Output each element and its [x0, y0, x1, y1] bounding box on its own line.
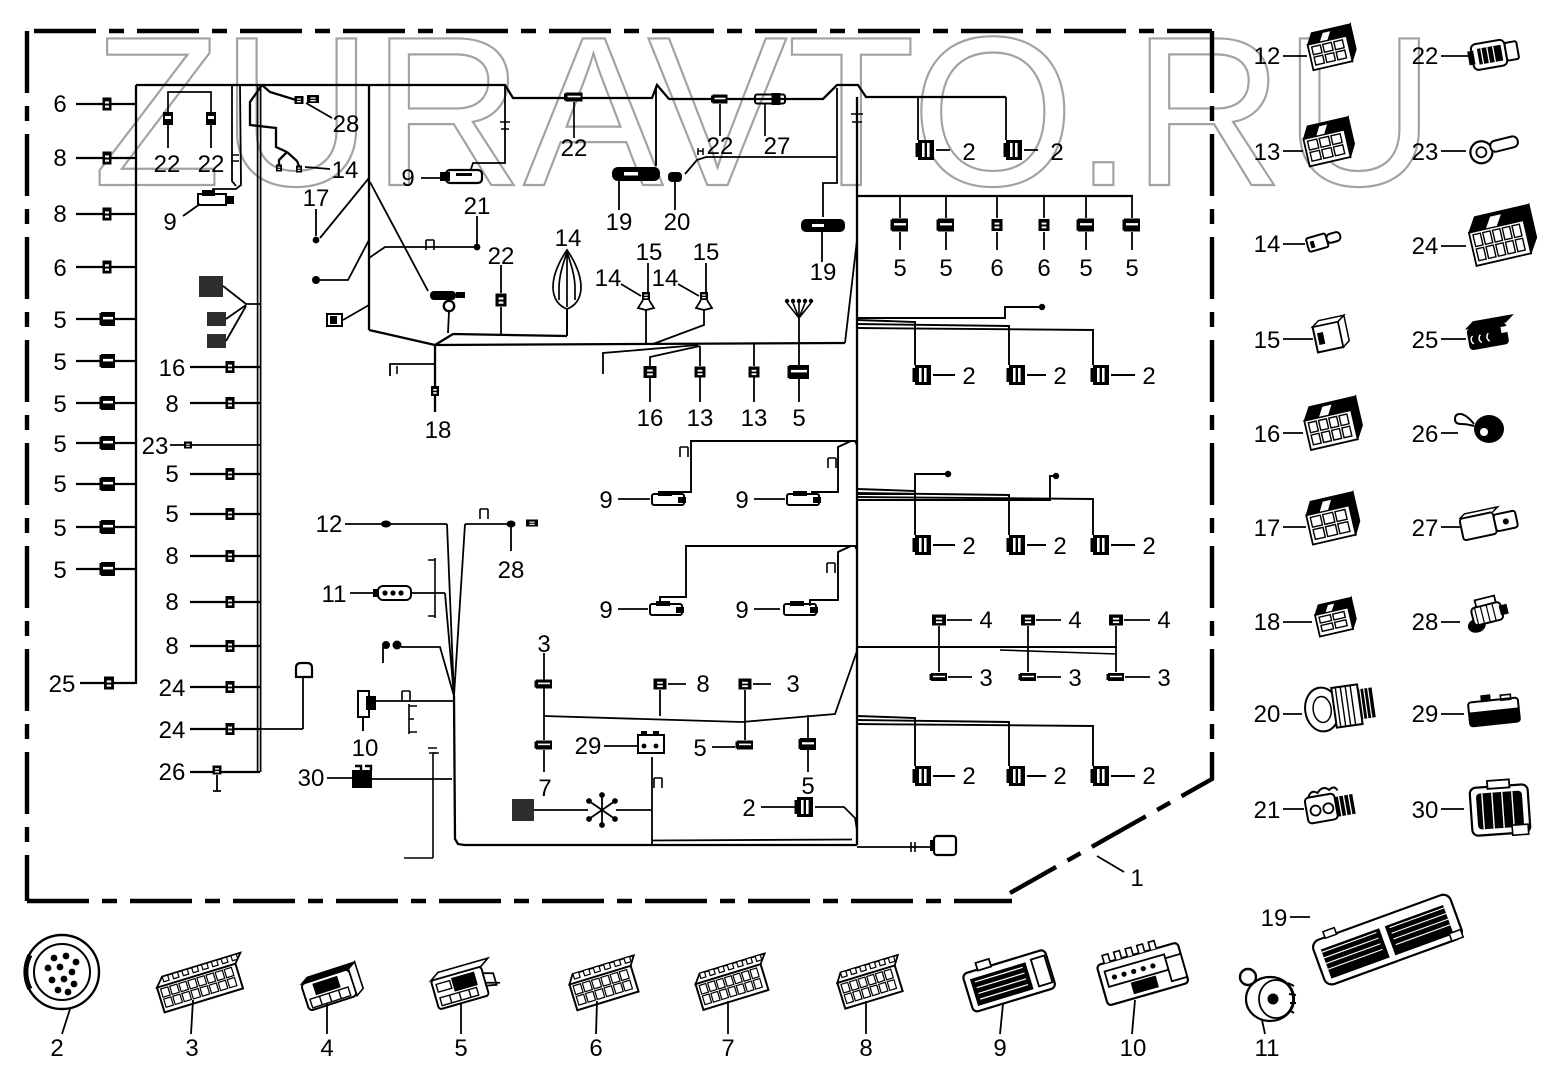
svg-text:10: 10 [352, 735, 379, 762]
svg-text:5: 5 [53, 515, 66, 542]
svg-text:22: 22 [707, 133, 734, 160]
svg-text:3: 3 [1068, 665, 1081, 692]
svg-text:5: 5 [893, 255, 906, 282]
svg-text:8: 8 [165, 633, 178, 660]
svg-text:5: 5 [165, 461, 178, 488]
svg-text:19: 19 [1261, 905, 1288, 932]
svg-text:15: 15 [636, 239, 663, 266]
svg-text:22: 22 [561, 135, 588, 162]
svg-text:18: 18 [425, 417, 452, 444]
svg-text:20: 20 [1254, 701, 1281, 728]
svg-text:5: 5 [693, 735, 706, 762]
svg-text:30: 30 [298, 765, 325, 792]
svg-text:ZURAVTO.RU: ZURAVTO.RU [93, 0, 1435, 231]
svg-text:8: 8 [696, 671, 709, 698]
svg-text:12: 12 [1254, 43, 1281, 70]
svg-text:25: 25 [1412, 327, 1439, 354]
svg-text:27: 27 [764, 133, 791, 160]
svg-text:2: 2 [1142, 533, 1155, 560]
svg-text:14: 14 [332, 157, 359, 184]
svg-text:27: 27 [1412, 515, 1439, 542]
svg-text:11: 11 [322, 581, 347, 608]
svg-text:3: 3 [979, 665, 992, 692]
svg-text:9: 9 [599, 487, 612, 514]
svg-text:2: 2 [50, 1035, 63, 1062]
svg-text:20: 20 [664, 209, 691, 236]
svg-text:26: 26 [1412, 421, 1439, 448]
svg-text:16: 16 [1254, 421, 1281, 448]
svg-text:9: 9 [401, 165, 414, 192]
svg-text:8: 8 [165, 391, 178, 418]
svg-text:9: 9 [735, 487, 748, 514]
svg-text:6: 6 [990, 255, 1003, 282]
svg-text:19: 19 [810, 259, 837, 286]
svg-text:5: 5 [939, 255, 952, 282]
svg-text:28: 28 [333, 111, 360, 138]
svg-text:5: 5 [165, 501, 178, 528]
svg-text:3: 3 [1157, 665, 1170, 692]
svg-text:8: 8 [165, 543, 178, 570]
svg-text:5: 5 [53, 471, 66, 498]
svg-text:6: 6 [589, 1035, 602, 1062]
svg-text:5: 5 [1125, 255, 1138, 282]
svg-text:2: 2 [962, 763, 975, 790]
svg-text:5: 5 [1079, 255, 1092, 282]
svg-text:23: 23 [1412, 139, 1439, 166]
svg-text:6: 6 [53, 255, 66, 282]
svg-text:2: 2 [1053, 763, 1066, 790]
svg-text:9: 9 [993, 1035, 1006, 1062]
svg-text:6: 6 [1037, 255, 1050, 282]
svg-text:5: 5 [801, 773, 814, 800]
svg-text:15: 15 [693, 239, 720, 266]
svg-text:28: 28 [498, 557, 525, 584]
svg-text:2: 2 [962, 363, 975, 390]
svg-text:5: 5 [53, 431, 66, 458]
svg-text:4: 4 [979, 607, 992, 634]
svg-text:16: 16 [159, 355, 186, 382]
svg-text:10: 10 [1120, 1035, 1147, 1062]
svg-text:9: 9 [735, 597, 748, 624]
svg-text:3: 3 [185, 1035, 198, 1062]
svg-text:2: 2 [1053, 533, 1066, 560]
svg-text:28: 28 [1412, 609, 1439, 636]
svg-text:7: 7 [538, 775, 551, 802]
svg-text:13: 13 [1254, 139, 1281, 166]
svg-text:22: 22 [1412, 43, 1439, 70]
svg-text:13: 13 [741, 405, 768, 432]
svg-text:14: 14 [555, 225, 582, 252]
svg-text:5: 5 [454, 1035, 467, 1062]
svg-text:16: 16 [637, 405, 664, 432]
svg-text:21: 21 [464, 193, 491, 220]
svg-text:14: 14 [1254, 231, 1281, 258]
svg-text:22: 22 [154, 151, 181, 178]
svg-text:2: 2 [1053, 363, 1066, 390]
svg-text:24: 24 [159, 717, 186, 744]
svg-text:7: 7 [721, 1035, 734, 1062]
svg-text:5: 5 [53, 307, 66, 334]
svg-text:6: 6 [53, 91, 66, 118]
svg-text:8: 8 [165, 589, 178, 616]
svg-text:5: 5 [53, 557, 66, 584]
svg-text:14: 14 [595, 265, 622, 292]
svg-text:24: 24 [159, 675, 186, 702]
svg-text:13: 13 [687, 405, 714, 432]
svg-text:2: 2 [1142, 763, 1155, 790]
svg-text:1: 1 [1130, 865, 1143, 892]
svg-text:9: 9 [599, 597, 612, 624]
svg-text:2: 2 [962, 533, 975, 560]
svg-text:2: 2 [1050, 139, 1063, 166]
svg-text:4: 4 [1068, 607, 1081, 634]
svg-text:11: 11 [1255, 1035, 1280, 1062]
svg-text:2: 2 [962, 139, 975, 166]
svg-text:29: 29 [1412, 701, 1439, 728]
svg-text:30: 30 [1412, 797, 1439, 824]
svg-text:21: 21 [1254, 797, 1281, 824]
svg-text:8: 8 [53, 145, 66, 172]
svg-text:12: 12 [316, 511, 343, 538]
svg-text:15: 15 [1254, 327, 1281, 354]
svg-text:5: 5 [53, 349, 66, 376]
svg-text:23: 23 [142, 433, 169, 460]
svg-text:14: 14 [652, 265, 679, 292]
svg-text:17: 17 [303, 185, 330, 212]
svg-text:19: 19 [606, 209, 633, 236]
svg-text:5: 5 [792, 405, 805, 432]
svg-text:2: 2 [1142, 363, 1155, 390]
svg-text:9: 9 [163, 209, 176, 236]
svg-text:29: 29 [575, 733, 602, 760]
svg-text:26: 26 [159, 759, 186, 786]
svg-text:8: 8 [859, 1035, 872, 1062]
svg-text:17: 17 [1254, 515, 1281, 542]
svg-text:5: 5 [53, 391, 66, 418]
svg-text:2: 2 [742, 795, 755, 822]
svg-text:22: 22 [198, 151, 225, 178]
svg-text:4: 4 [1157, 607, 1170, 634]
svg-text:4: 4 [320, 1035, 333, 1062]
svg-text:24: 24 [1412, 233, 1439, 260]
svg-text:3: 3 [786, 671, 799, 698]
svg-text:8: 8 [53, 201, 66, 228]
svg-text:18: 18 [1254, 609, 1281, 636]
svg-text:25: 25 [49, 671, 76, 698]
